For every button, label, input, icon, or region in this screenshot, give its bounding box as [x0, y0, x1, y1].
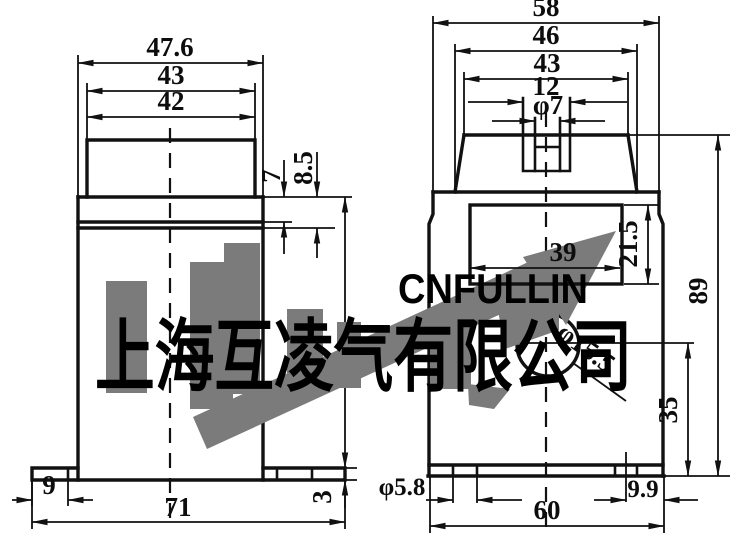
watermark-text: CNFULLIN 上海互凌气有限公司: [95, 265, 632, 401]
dim-window-height: 21.5: [613, 220, 643, 267]
brand-watermark: CNFULLIN: [398, 265, 588, 312]
dim-front-base-width: 71: [165, 492, 192, 522]
dim-side-overall-width: 58: [533, 0, 560, 22]
dim-terminal-hole: φ7: [533, 90, 563, 120]
technical-drawing: 47.6 43 42 7 8.5 3 9 71: [0, 0, 739, 544]
dim-front-collar-height: 8.5: [288, 151, 318, 185]
dim-front-foot-width: 9: [42, 470, 56, 500]
company-watermark: 上海互凌气有限公司: [95, 312, 632, 401]
dim-front-collar-step: 7: [256, 169, 286, 183]
dim-overall-height: 89: [683, 278, 713, 305]
front-dimensions: 47.6 43 42 7 8.5 3 9 71: [12, 32, 345, 522]
dim-front-flange-width: 47.6: [146, 32, 193, 62]
dim-front-cap-inner: 42: [158, 86, 185, 116]
dim-slot-offset: 9.9: [627, 476, 658, 503]
dim-slot-width: φ5.8: [379, 474, 426, 501]
dim-window-width: 39: [550, 237, 577, 267]
drawing-canvas: 47.6 43 42 7 8.5 3 9 71: [0, 0, 739, 544]
dim-side-shoulder-width: 46: [533, 20, 560, 50]
dim-hole-center-height: 35: [653, 397, 683, 424]
dim-front-base-thickness: 3: [307, 490, 337, 504]
front-view: 47.6 43 42 7 8.5 3 9 71: [12, 32, 357, 529]
dim-side-base-width: 60: [534, 495, 561, 525]
